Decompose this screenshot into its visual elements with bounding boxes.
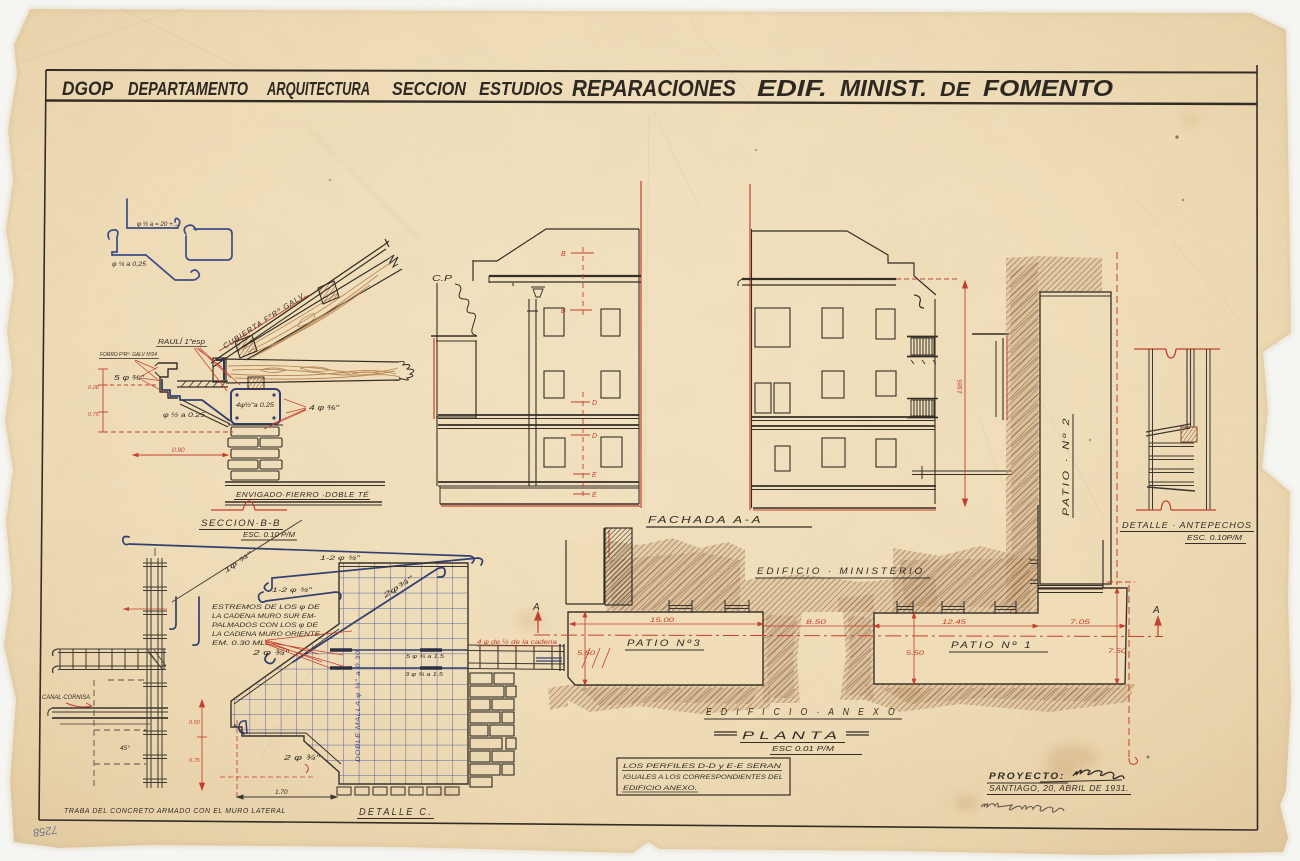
svg-text:EM. 0.30 ML.: EM. 0.30 ML. <box>212 641 268 647</box>
svg-text:EDIF.: EDIF. <box>757 75 827 101</box>
svg-text:E: E <box>592 492 597 499</box>
svg-text:PROYECTO:: PROYECTO: <box>989 771 1065 781</box>
svg-text:D: D <box>592 400 597 407</box>
svg-text:1-2 φ ¾": 1-2 φ ¾" <box>320 555 361 562</box>
svg-text:DE: DE <box>940 79 971 101</box>
svg-text:PATIO Nº 1: PATIO Nº 1 <box>951 640 1033 651</box>
svg-text:SECCION·B-B: SECCION·B-B <box>201 518 281 529</box>
svg-text:EDIFICIO ANEXO.: EDIFICIO ANEXO. <box>623 785 697 792</box>
svg-text:LA CADENA MURO ORIENTE: LA CADENA MURO ORIENTE <box>212 632 321 638</box>
svg-text:A: A <box>532 602 540 613</box>
svg-text:PALMADOS CON LOS φ DE: PALMADOS CON LOS φ DE <box>212 623 319 629</box>
svg-text:DEPARTAMENTO: DEPARTAMENTO <box>128 79 248 99</box>
svg-text:0.75: 0.75 <box>189 758 201 764</box>
svg-text:4 φ ⅜": 4 φ ⅜" <box>309 405 340 412</box>
svg-text:FACHADA A-A: FACHADA A-A <box>648 514 763 526</box>
svg-text:1385: 1385 <box>957 379 964 394</box>
svg-text:D: D <box>592 433 597 440</box>
svg-text:LOS PERFILES D-D y E-E SERAN: LOS PERFILES D-D y E-E SERAN <box>623 763 781 770</box>
svg-text:SECCION: SECCION <box>392 79 467 99</box>
svg-text:5.50: 5.50 <box>906 651 925 657</box>
svg-text:IGUALES A LOS CORRESPONDIENTES: IGUALES A LOS CORRESPONDIENTES DEL <box>623 774 783 781</box>
svg-text:EDIFICIO · MINISTERIO: EDIFICIO · MINISTERIO <box>757 566 925 576</box>
svg-text:C.P: C.P <box>432 274 453 283</box>
svg-text:ARQUITECTURA: ARQUITECTURA <box>266 79 370 99</box>
svg-text:φ ½ a = 20 +→: φ ½ a = 20 +→ <box>137 221 179 228</box>
svg-text:PATIO Nº3: PATIO Nº3 <box>627 638 702 649</box>
svg-text:ESC. 0.10 P/M: ESC. 0.10 P/M <box>243 530 296 539</box>
svg-text:DGOP: DGOP <box>62 79 113 100</box>
svg-text:PATIO · Nº 2: PATIO · Nº 2 <box>1061 416 1072 516</box>
svg-text:φ ½ a 0.25: φ ½ a 0.25 <box>163 411 205 419</box>
svg-text:1-2 φ ¾": 1-2 φ ¾" <box>272 587 313 594</box>
svg-text:φ ¼ a 0,25: φ ¼ a 0,25 <box>112 262 147 268</box>
svg-text:0.90: 0.90 <box>172 447 185 454</box>
svg-text:ENVIGADO·FIERRO ·DOBLE TÉ: ENVIGADO·FIERRO ·DOBLE TÉ <box>236 490 370 499</box>
svg-text:FOMENTO: FOMENTO <box>983 75 1113 101</box>
svg-text:4φ½"a 0.25: 4φ½"a 0.25 <box>236 401 274 409</box>
svg-text:DOBLE MALLA φ ¼" a 0.30: DOBLE MALLA φ ¼" a 0.30 <box>355 650 362 762</box>
svg-text:A: A <box>1152 605 1160 616</box>
svg-text:DETALLE · ANTEPECHOS: DETALLE · ANTEPECHOS <box>1122 521 1252 530</box>
svg-text:0.50: 0.50 <box>189 720 201 726</box>
svg-text:2 φ ¾": 2 φ ¾" <box>251 648 289 657</box>
svg-text:7.50: 7.50 <box>1108 649 1127 655</box>
svg-text:5 φ ⅜": 5 φ ⅜" <box>114 375 145 382</box>
svg-text:LA CADENA MURO SUR EM-: LA CADENA MURO SUR EM- <box>212 614 316 620</box>
svg-text:SANTIAGO, 20, ABRIL DE 1931.: SANTIAGO, 20, ABRIL DE 1931. <box>989 783 1129 793</box>
svg-text:7.05: 7.05 <box>1070 620 1091 626</box>
svg-text:45°: 45° <box>120 744 130 752</box>
svg-text:3 φ ¾ a 1.5: 3 φ ¾ a 1.5 <box>405 672 444 678</box>
svg-text:CANAL·CORNISA: CANAL·CORNISA <box>42 695 90 701</box>
svg-text:2 φ ¾": 2 φ ¾" <box>282 753 320 762</box>
svg-text:B: B <box>561 308 566 315</box>
svg-text:E: E <box>592 472 597 479</box>
svg-text:FORRO FºRº· GALV Nº24: FORRO FºRº· GALV Nº24 <box>100 351 157 358</box>
svg-text:RAULÍ 1"esp: RAULÍ 1"esp <box>158 337 205 346</box>
svg-text:ESTREMOS DE LOS φ DE: ESTREMOS DE LOS φ DE <box>212 605 321 611</box>
svg-text:5 φ ¾ a 1.5: 5 φ ¾ a 1.5 <box>406 654 445 660</box>
svg-text:PLANTA: PLANTA <box>742 730 842 742</box>
svg-text:E D I F I C I O · A N E X O: E D I F I C I O · A N E X O <box>706 707 898 718</box>
svg-text:ESC 0.01 P/M: ESC 0.01 P/M <box>772 744 835 753</box>
svg-text:MINIST.: MINIST. <box>840 75 927 101</box>
svg-text:8.50: 8.50 <box>806 620 827 626</box>
svg-text:ESC. 0.10P/M: ESC. 0.10P/M <box>1187 535 1242 542</box>
svg-text:TRABA DEL CONCRETO ARMADO CON: TRABA DEL CONCRETO ARMADO CON EL MURO LA… <box>64 808 286 815</box>
svg-text:ESTUDIOS: ESTUDIOS <box>479 79 563 99</box>
svg-text:B: B <box>561 251 566 258</box>
svg-text:DETALLE C.: DETALLE C. <box>359 806 433 818</box>
svg-text:1.70: 1.70 <box>275 789 288 796</box>
svg-text:12.45: 12.45 <box>942 620 967 626</box>
svg-text:4 φ de ½ de la cadena: 4 φ de ½ de la cadena <box>477 639 558 646</box>
svg-text:0.28: 0.28 <box>88 385 100 391</box>
svg-text:REPARACIONES: REPARACIONES <box>572 75 737 101</box>
svg-text:15.00: 15.00 <box>650 618 675 624</box>
svg-text:0.75: 0.75 <box>88 412 100 418</box>
